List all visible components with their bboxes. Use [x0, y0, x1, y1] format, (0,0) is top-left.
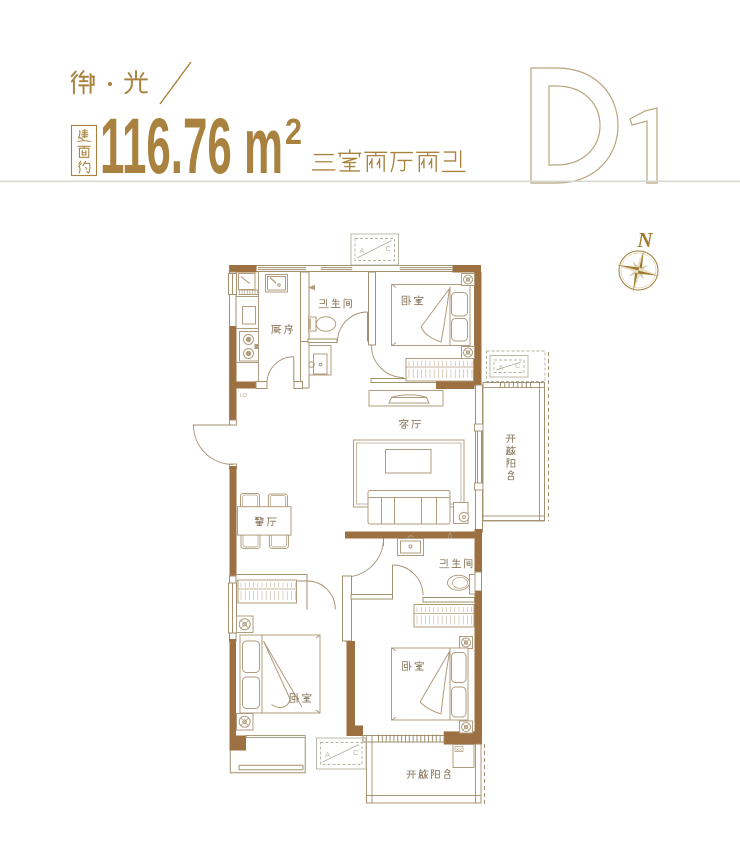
- svg-text:C: C: [353, 748, 359, 757]
- svg-text:A: A: [499, 363, 504, 372]
- svg-text:C: C: [386, 244, 392, 253]
- svg-text:N: N: [636, 228, 653, 252]
- svg-text:A: A: [325, 750, 330, 759]
- svg-text:A: A: [360, 246, 365, 255]
- svg-text:116.76 m: 116.76 m: [100, 101, 283, 190]
- svg-text:C: C: [515, 361, 521, 370]
- svg-text:LD: LD: [240, 393, 247, 399]
- svg-text:XX: XX: [456, 747, 462, 752]
- svg-text:2: 2: [285, 111, 302, 152]
